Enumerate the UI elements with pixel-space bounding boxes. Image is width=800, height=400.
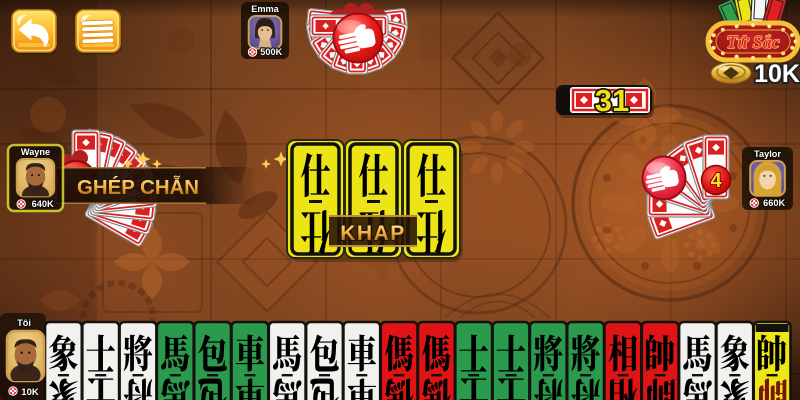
svg-text:Taylor: Taylor	[754, 149, 781, 159]
svg-text:660K: 660K	[763, 198, 785, 208]
svg-text:Tôi: Tôi	[17, 318, 31, 328]
svg-text:640K: 640K	[32, 199, 54, 209]
svg-text:Wayne: Wayne	[21, 147, 50, 157]
svg-text:GHÉP CHẴN: GHÉP CHẴN	[77, 176, 199, 199]
svg-text:31: 31	[595, 83, 629, 118]
svg-text:10K: 10K	[21, 387, 39, 398]
svg-text:500K: 500K	[260, 47, 282, 57]
svg-text:Emma: Emma	[251, 4, 279, 14]
svg-text:KHAP: KHAP	[340, 222, 406, 245]
svg-text:10K: 10K	[754, 60, 800, 88]
svg-text:4: 4	[710, 170, 722, 192]
svg-text:Tứ Sắc: Tứ Sắc	[726, 32, 779, 52]
